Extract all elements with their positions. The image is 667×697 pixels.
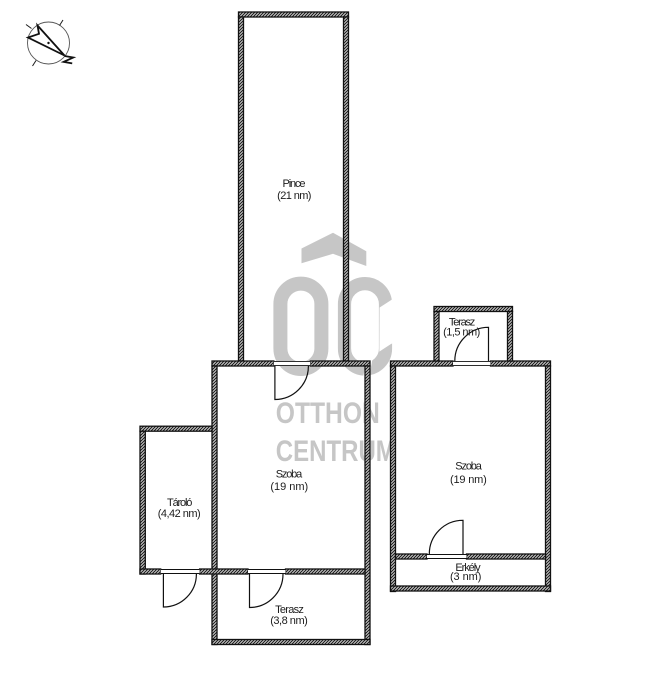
svg-text:Szoba: Szoba	[455, 461, 482, 473]
svg-text:(3,8 nm): (3,8 nm)	[270, 615, 308, 627]
svg-text:(4,42 nm): (4,42 nm)	[158, 508, 201, 520]
svg-text:(1,5 nm): (1,5 nm)	[443, 327, 480, 339]
svg-text:Szoba: Szoba	[276, 469, 303, 481]
svg-text:OTTHON: OTTHON	[276, 397, 380, 430]
svg-text:(21 nm): (21 nm)	[277, 190, 311, 202]
svg-text:CENTRUM: CENTRUM	[276, 435, 396, 468]
svg-text:(3 nm): (3 nm)	[450, 571, 482, 583]
svg-text:Pince: Pince	[283, 178, 306, 190]
svg-text:(19 nm): (19 nm)	[270, 481, 308, 493]
svg-text:(19 nm): (19 nm)	[450, 474, 487, 486]
